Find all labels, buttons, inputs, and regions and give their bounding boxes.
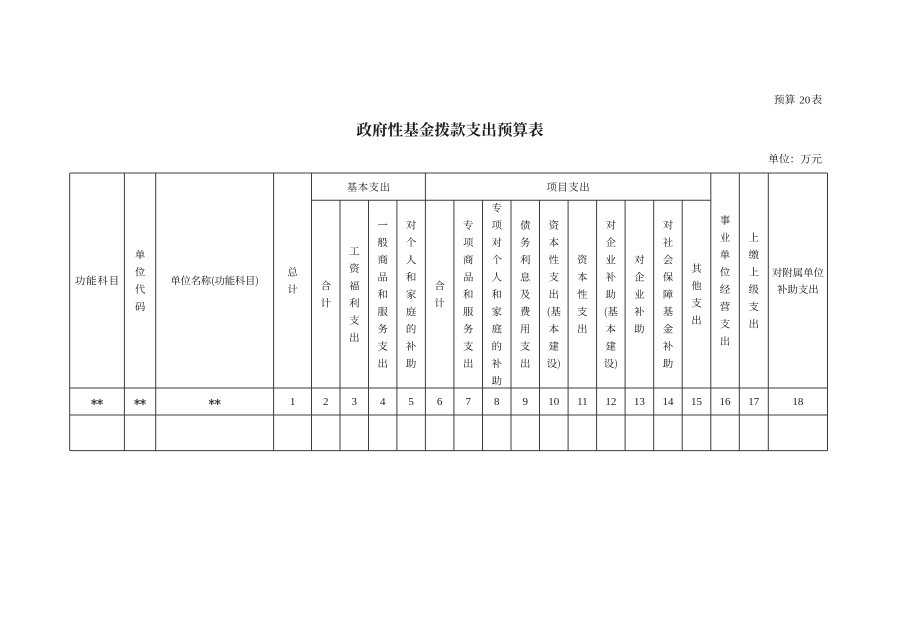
svg-text:11: 11 <box>577 396 588 408</box>
svg-text:8: 8 <box>494 396 500 408</box>
svg-text:4: 4 <box>380 396 386 408</box>
svg-text:2: 2 <box>323 396 329 408</box>
svg-text:20: 20 <box>799 94 811 106</box>
svg-text:5: 5 <box>408 396 414 408</box>
svg-text:18: 18 <box>792 396 804 408</box>
svg-text:1: 1 <box>290 396 296 408</box>
svg-text:14: 14 <box>663 396 675 408</box>
svg-text:3: 3 <box>351 396 357 408</box>
svg-text:13: 13 <box>634 396 646 408</box>
svg-text:17: 17 <box>748 396 760 408</box>
svg-text:6: 6 <box>437 396 443 408</box>
svg-text:7: 7 <box>465 396 471 408</box>
svg-text:15: 15 <box>691 396 703 408</box>
svg-text:10: 10 <box>548 396 560 408</box>
svg-text:9: 9 <box>522 396 528 408</box>
svg-text:16: 16 <box>720 396 732 408</box>
svg-text:12: 12 <box>605 396 616 408</box>
